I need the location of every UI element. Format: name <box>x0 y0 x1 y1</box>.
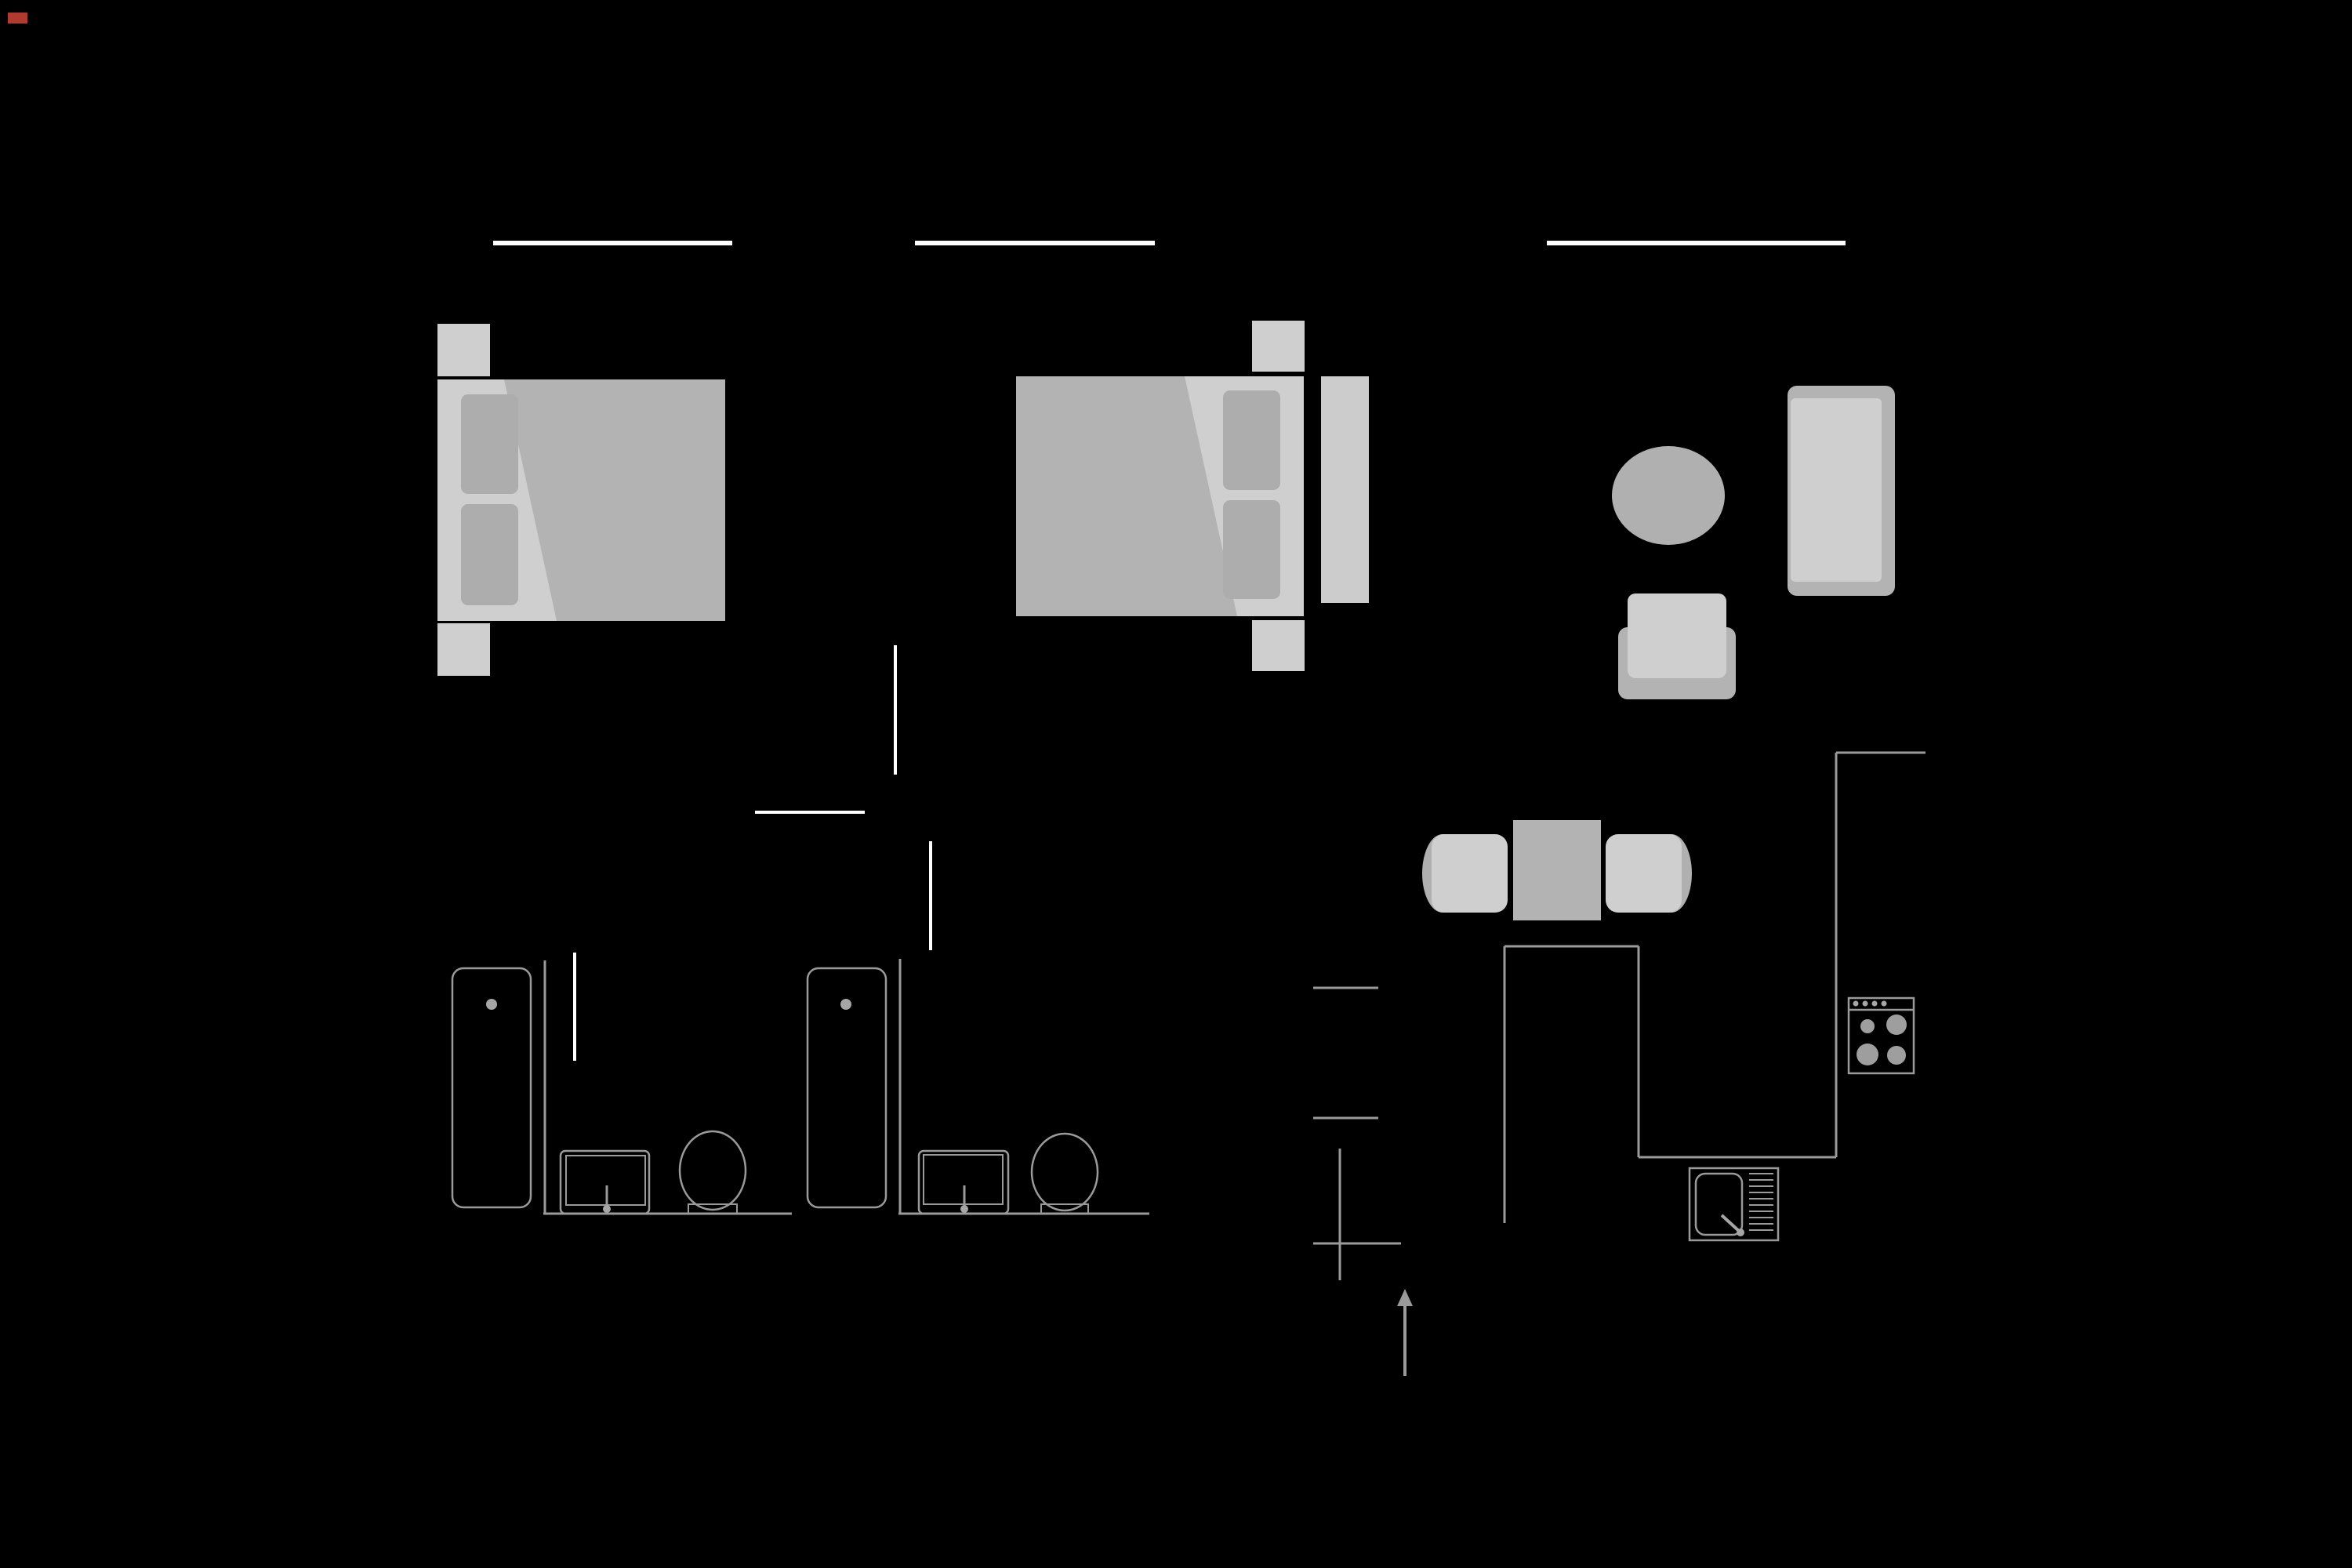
toilet-1-bowl <box>680 1131 746 1210</box>
nightstand-2-bottom <box>1252 620 1305 671</box>
bed-2-pillow-bottom <box>1223 500 1280 599</box>
sink-faucet <box>1722 1215 1740 1232</box>
window-bedroom-1 <box>493 241 732 245</box>
stove-knob-3 <box>1872 1001 1878 1007</box>
hall-wall-vertical-1 <box>894 645 897 775</box>
bed-1-pillow-top <box>461 394 518 494</box>
bed-1-pillow-bottom <box>461 504 518 605</box>
stove-knob-1 <box>1853 1001 1859 1007</box>
nightstand-1-top <box>437 324 490 376</box>
stove-knob-2 <box>1863 1001 1868 1007</box>
red-marker <box>8 13 27 24</box>
stove-burner-bottom-left <box>1857 1044 1878 1065</box>
nightstand-1-bottom <box>437 623 490 676</box>
hall-wall-vertical-2 <box>929 841 932 950</box>
sofa-seat <box>1791 398 1882 582</box>
stove-knob-4 <box>1882 1001 1887 1007</box>
dining-table <box>1513 820 1601 920</box>
stove-burner-top-right <box>1886 1014 1907 1035</box>
floor-plan-canvas <box>0 0 2352 1568</box>
toilet-2-bowl <box>1032 1134 1098 1210</box>
floor-plan <box>0 0 2352 1568</box>
shower-2-head <box>840 999 851 1010</box>
wardrobe <box>1321 376 1369 603</box>
washbasin-1-tap-dot <box>603 1205 611 1213</box>
nightstand-2-top <box>1252 321 1305 372</box>
hall-wall-horizontal <box>755 811 865 814</box>
bathroom-1-door-line <box>573 953 576 1061</box>
window-living-room <box>1547 241 1846 245</box>
shower-1-head <box>486 999 497 1010</box>
coffee-table <box>1612 446 1725 545</box>
stove-burner-bottom-right <box>1887 1046 1906 1065</box>
washbasin-2-tap-dot <box>960 1205 968 1213</box>
dining-chair-right-seat <box>1606 834 1682 913</box>
stove-burner-top-left <box>1860 1019 1875 1033</box>
dining-chair-left-seat <box>1432 834 1508 913</box>
window-bedroom-2 <box>915 241 1155 245</box>
north-arrow-head <box>1397 1289 1413 1306</box>
armchair-seat <box>1628 593 1726 678</box>
sink-faucet-dot <box>1737 1229 1744 1236</box>
bed-2-pillow-top <box>1223 390 1280 490</box>
